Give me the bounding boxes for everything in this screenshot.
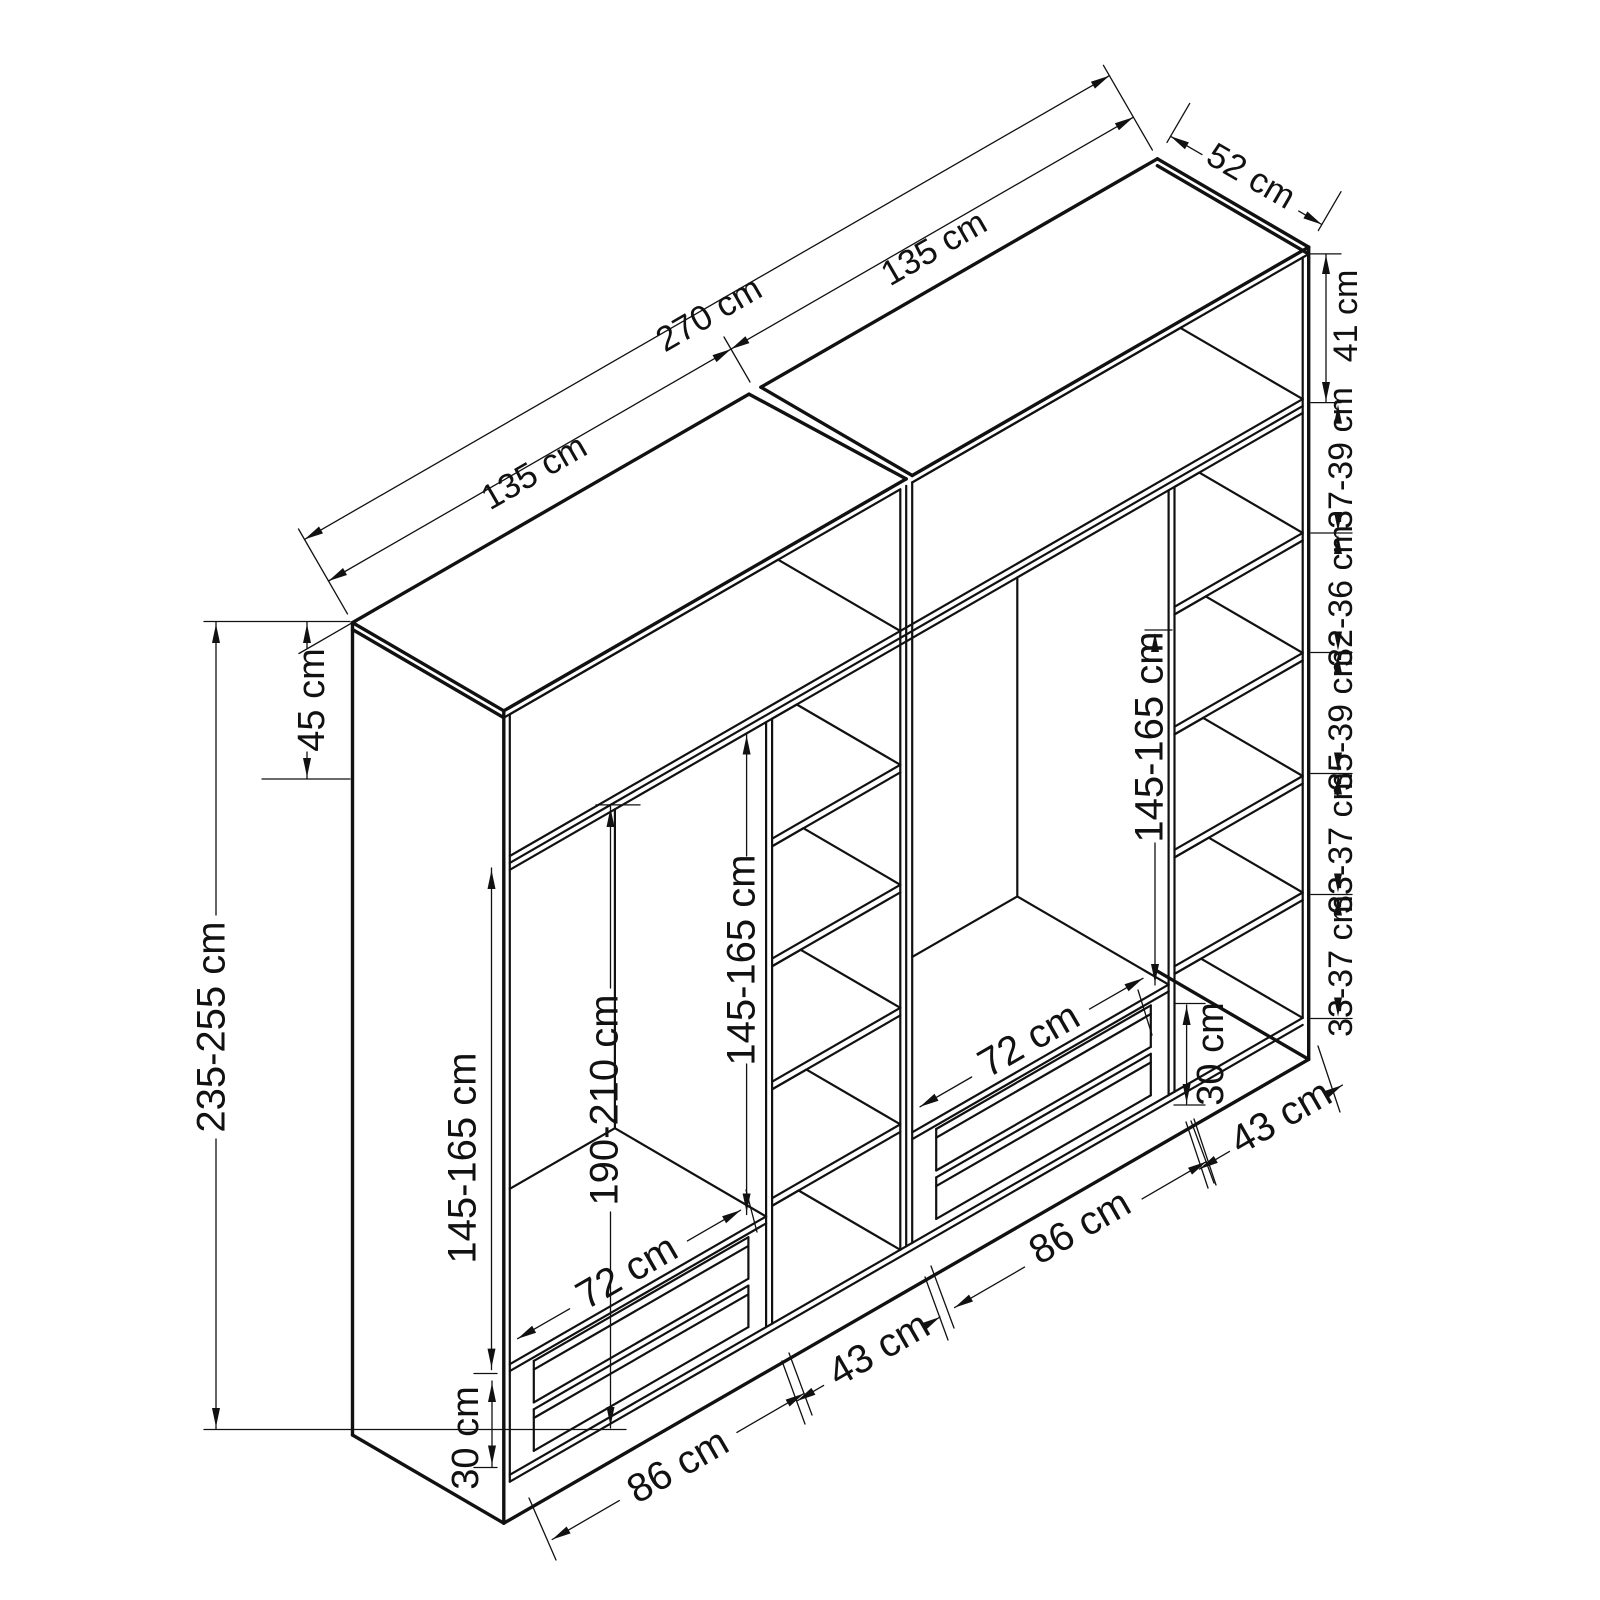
svg-text:45 cm: 45 cm [291, 648, 333, 751]
svg-text:145-165 cm: 145-165 cm [1128, 631, 1172, 842]
svg-text:33-37 cm: 33-37 cm [1322, 895, 1360, 1037]
svg-text:30 cm: 30 cm [1190, 1002, 1232, 1105]
svg-text:30 cm: 30 cm [445, 1386, 487, 1489]
svg-text:33-37 cm: 33-37 cm [1322, 772, 1360, 914]
svg-text:145-165 cm: 145-165 cm [441, 1052, 485, 1263]
svg-text:41 cm: 41 cm [1327, 270, 1365, 363]
svg-text:35-39 cm: 35-39 cm [1322, 649, 1360, 791]
svg-text:37-39 cm: 37-39 cm [1322, 387, 1360, 529]
svg-text:32-36 cm: 32-36 cm [1322, 525, 1360, 667]
svg-text:235-255 cm: 235-255 cm [190, 921, 234, 1132]
svg-text:145-165 cm: 145-165 cm [720, 854, 764, 1065]
svg-text:190-210 cm: 190-210 cm [583, 994, 627, 1205]
